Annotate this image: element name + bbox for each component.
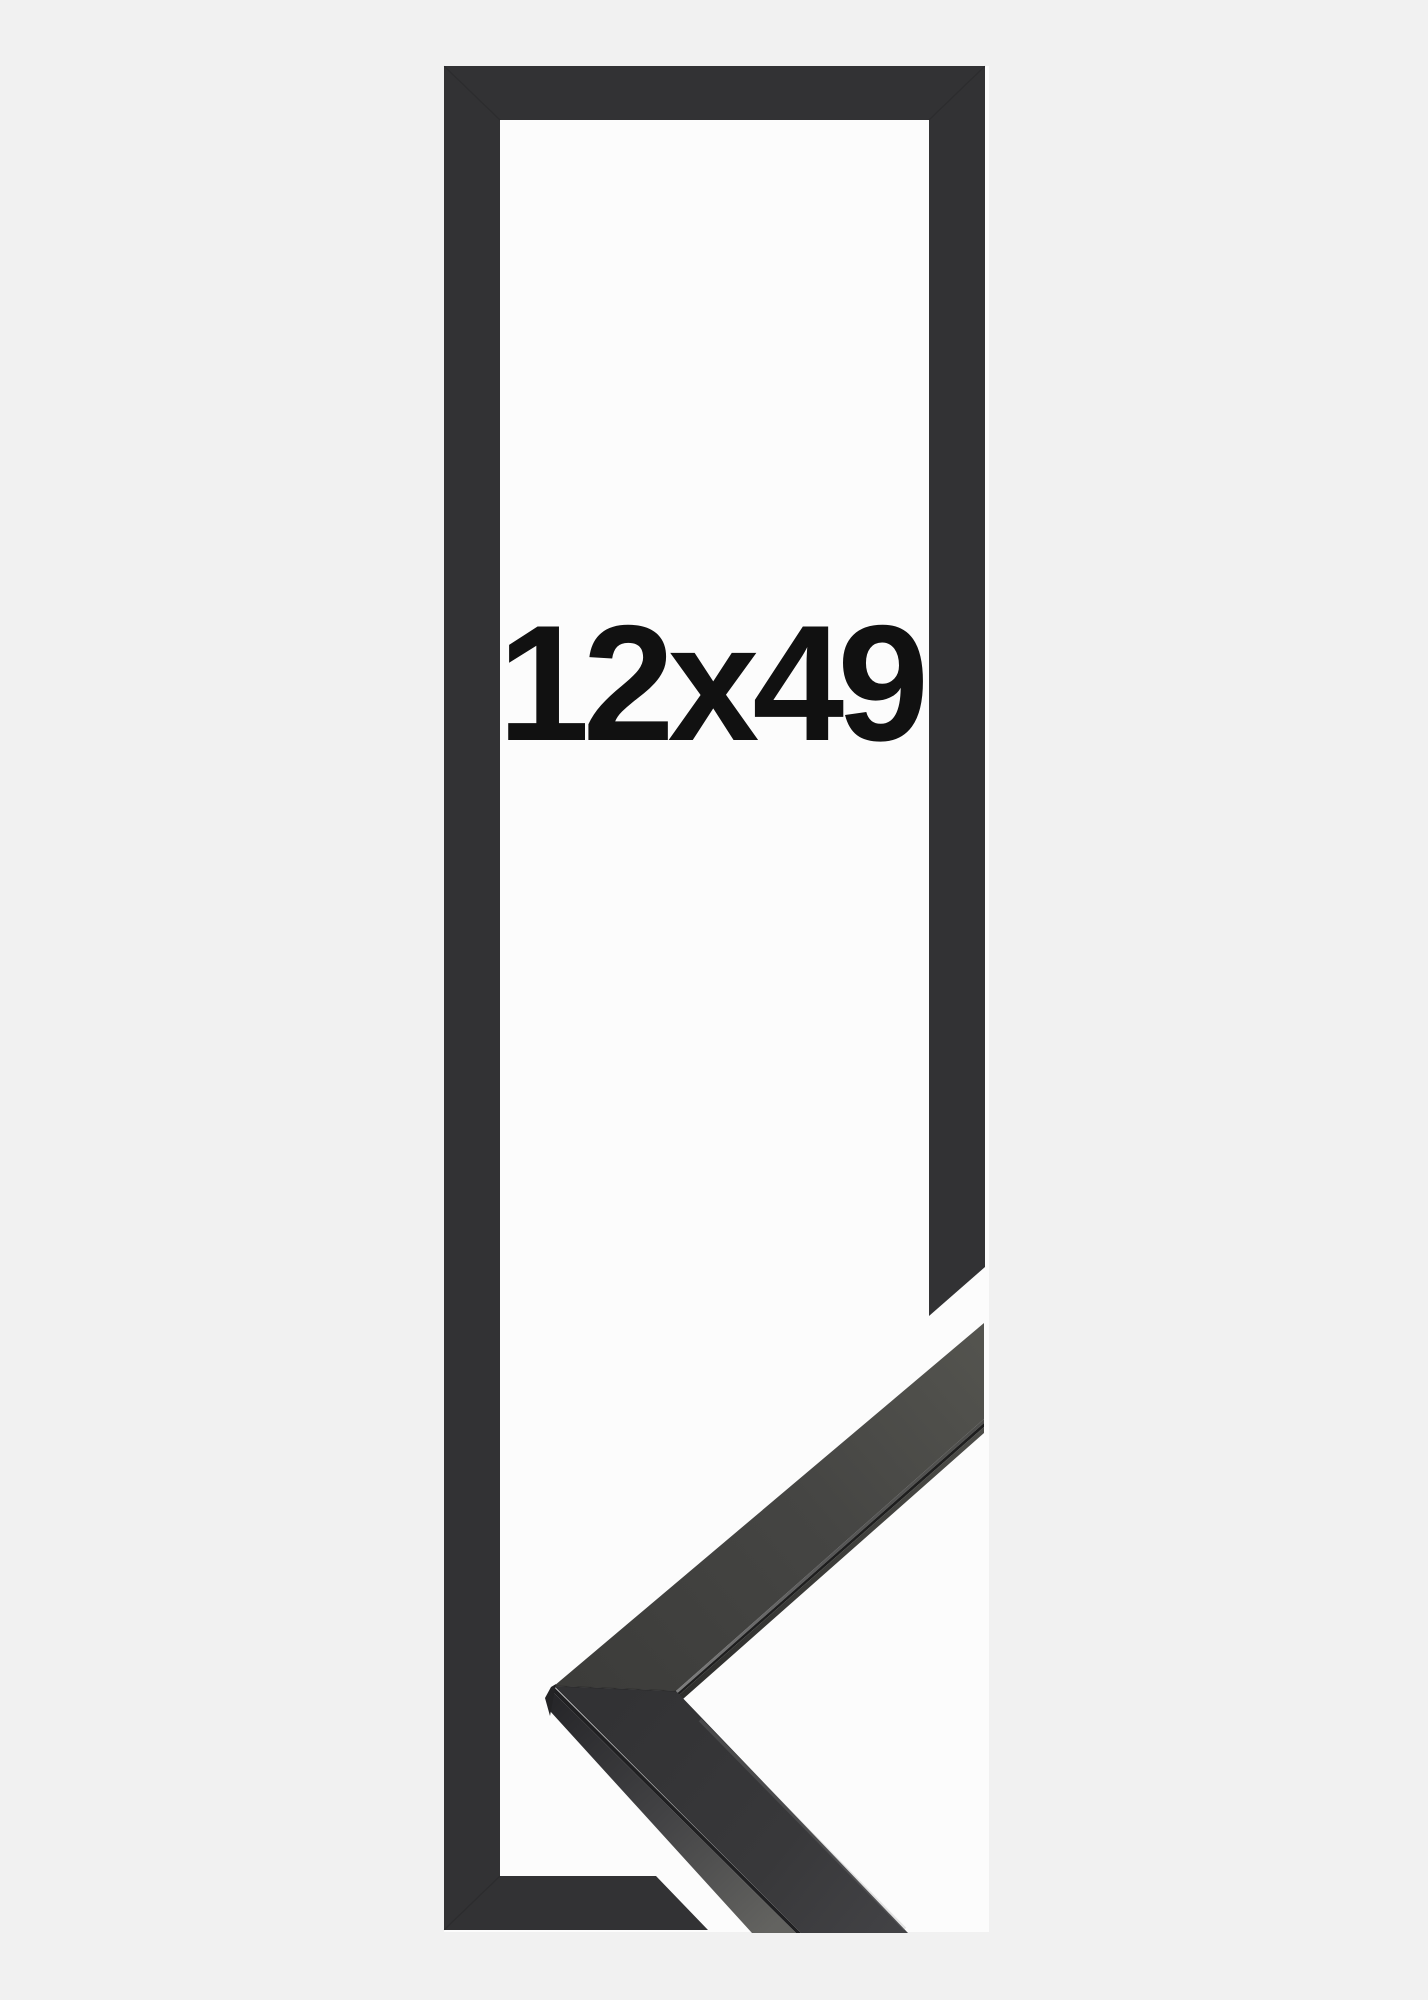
- svg-text:12x49: 12x49: [498, 591, 923, 775]
